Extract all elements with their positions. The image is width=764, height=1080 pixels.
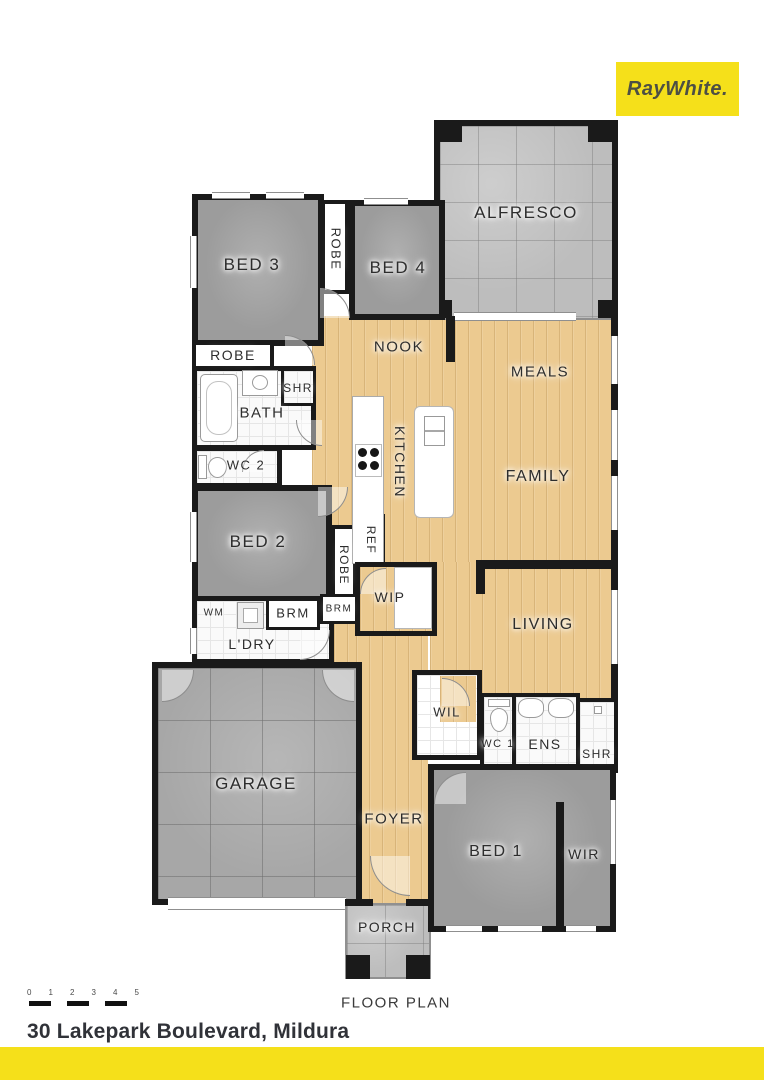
label-wip: WIP <box>375 589 406 605</box>
label-bed3: BED 3 <box>224 255 281 275</box>
label-alfresco: ALFRESCO <box>474 203 578 223</box>
label-nook: NOOK <box>374 339 424 356</box>
label-garage: GARAGE <box>215 774 297 794</box>
label-bed2: BED 2 <box>230 532 287 552</box>
label-shr-bath: SHR <box>283 381 313 395</box>
plan-title: FLOOR PLAN <box>341 995 451 1012</box>
label-foyer: FOYER <box>364 811 423 828</box>
scale-segment <box>67 1001 89 1006</box>
window <box>190 512 197 562</box>
label-wm: WM <box>204 608 225 619</box>
window <box>611 336 618 384</box>
scale-segment <box>105 1001 127 1006</box>
window <box>611 476 618 530</box>
wall-living-stub <box>476 560 485 594</box>
sink-icon <box>548 698 574 718</box>
label-wc1: WC 1 <box>481 738 515 750</box>
scale-number: 3 <box>92 988 96 997</box>
label-wil: WIL <box>433 705 461 720</box>
window <box>566 925 596 932</box>
window <box>212 192 250 199</box>
laundry-trough-icon <box>243 608 258 623</box>
shower-head-icon <box>594 706 602 714</box>
sink-icon <box>252 375 268 390</box>
scale-number: 0 <box>27 988 31 997</box>
raywhite-logo-text: RayWhite. <box>627 78 728 101</box>
label-family: FAMILY <box>506 468 571 486</box>
label-bed4: BED 4 <box>370 258 427 278</box>
label-shr-ens: SHR <box>582 747 612 761</box>
label-robe-beds: ROBE <box>329 228 344 271</box>
wall-porch-top <box>345 899 373 906</box>
label-bed1: BED 1 <box>469 843 523 861</box>
wall-living <box>476 560 617 569</box>
footer-yellow-bar <box>0 1047 764 1080</box>
island-sink-divider <box>425 430 444 432</box>
label-wir: WIR <box>568 846 600 862</box>
porch-post <box>406 955 430 979</box>
laundry-door-gap <box>190 628 197 654</box>
alfresco-post <box>438 124 462 142</box>
garage-door <box>168 897 346 910</box>
wall-wir-divider <box>556 802 564 926</box>
label-kitchen: KITCHEN <box>392 426 408 498</box>
toilet-icon <box>198 455 207 479</box>
label-brm1: BRM <box>276 606 309 621</box>
cooktop-burner <box>370 448 379 457</box>
label-wc2: WC 2 <box>227 458 266 473</box>
window <box>446 925 482 932</box>
alfresco-post <box>588 124 612 142</box>
window <box>364 198 408 205</box>
window <box>498 925 542 932</box>
window <box>611 410 618 460</box>
sink-icon <box>518 698 544 718</box>
label-robe-bed3: ROBE <box>210 347 256 363</box>
scale-bar-numbers: 0 1 2 3 4 5 <box>27 988 139 997</box>
scale-number: 4 <box>113 988 117 997</box>
address: 30 Lakepark Boulevard, Mildura <box>27 1020 349 1044</box>
scale-number: 5 <box>135 988 139 997</box>
porch-post <box>346 955 370 979</box>
floor-plan-page: RayWhite. <box>0 0 764 1080</box>
scale-bar: 0 1 2 3 4 5 <box>27 988 139 1008</box>
cooktop-burner <box>358 448 367 457</box>
label-brm2: BRM <box>326 604 353 615</box>
label-robe-bed2: ROBE <box>337 545 351 585</box>
label-living: LIVING <box>512 616 573 634</box>
label-ref: REF <box>364 526 378 555</box>
scale-number: 1 <box>49 988 53 997</box>
label-porch: PORCH <box>358 919 416 935</box>
label-bath: BATH <box>240 405 285 422</box>
label-ldry: L'DRY <box>228 636 275 652</box>
window <box>190 236 197 288</box>
bathtub-icon <box>206 381 232 435</box>
label-ens: ENS <box>528 736 561 752</box>
window <box>611 590 618 664</box>
label-meals: MEALS <box>511 364 569 381</box>
window <box>266 192 304 199</box>
cooktop-burner <box>358 461 367 470</box>
window <box>610 800 616 864</box>
alfresco-sliding-door <box>454 312 576 321</box>
wall-nook-stub <box>446 316 455 362</box>
cooktop-burner <box>370 461 379 470</box>
scale-segment <box>29 1001 51 1006</box>
raywhite-logo: RayWhite. <box>616 62 739 116</box>
scale-number: 2 <box>70 988 74 997</box>
toilet-icon <box>488 699 510 707</box>
